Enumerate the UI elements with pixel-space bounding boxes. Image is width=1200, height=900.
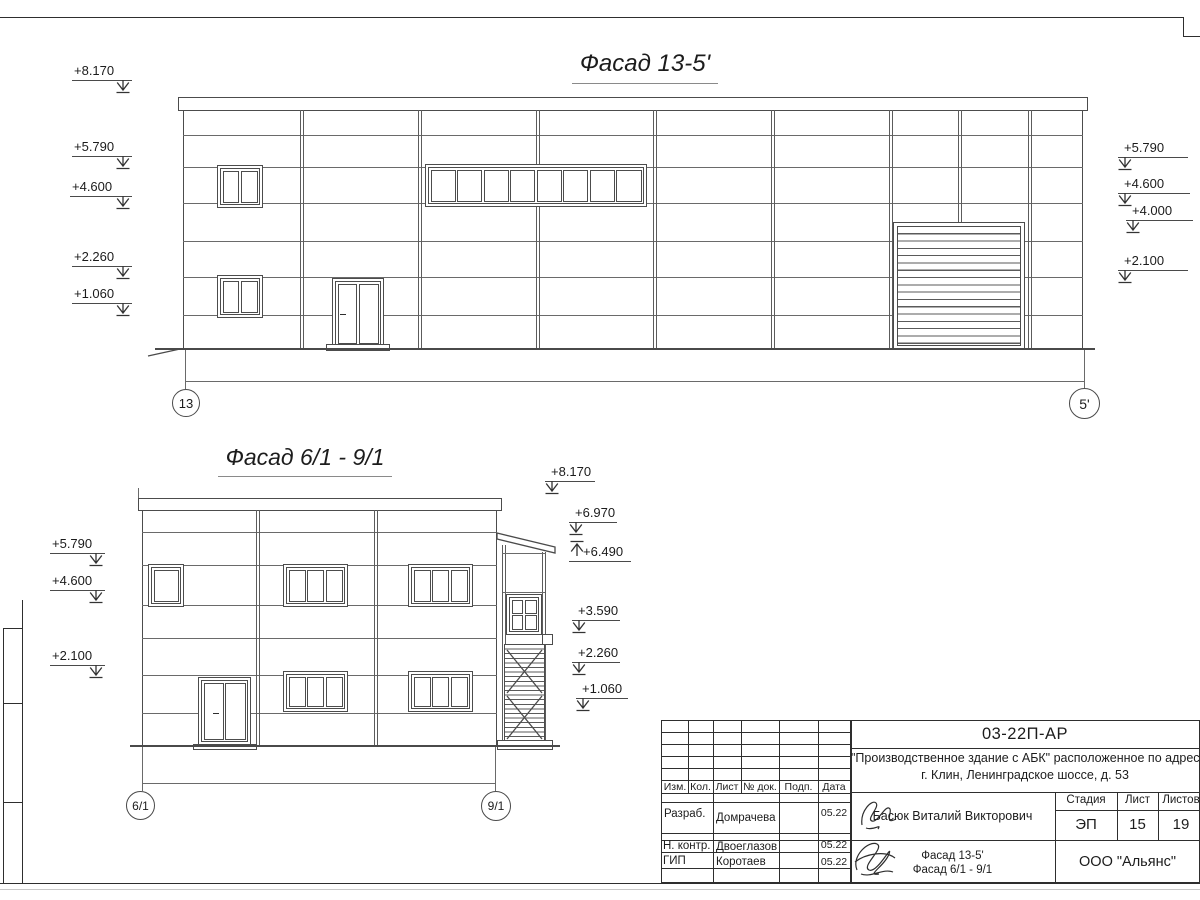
sheets-label: Листов <box>1158 794 1200 806</box>
window <box>217 275 263 318</box>
window <box>408 671 473 712</box>
door-handle <box>213 713 219 714</box>
stage-label: Стадия <box>1055 794 1117 806</box>
col-header: № док. <box>741 781 779 793</box>
elevation-mark: +4.600 <box>50 573 105 591</box>
sheet-label: Лист <box>1117 794 1158 806</box>
mullion <box>418 110 422 348</box>
document-number: 03-22П-АР <box>850 721 1200 747</box>
facade2-title: Фасад 6/1 - 9/1 <box>185 444 425 477</box>
tb-line <box>661 793 850 794</box>
project-line1: "Производственное здание с АБК" располож… <box>851 751 1199 765</box>
mullion <box>374 510 378 745</box>
mullion <box>1028 110 1032 348</box>
frame-line <box>0 883 1200 884</box>
tb-line <box>661 802 850 803</box>
role-name: Двоеглазов <box>716 841 777 853</box>
ground-line <box>155 348 1095 350</box>
joint-line <box>183 135 1083 136</box>
drawing-title-line2: Фасад 6/1 - 9/1 <box>913 864 992 876</box>
elevation-mark: +8.170 <box>545 464 595 482</box>
elevation-mark: +3.590 <box>572 603 620 621</box>
axis-bubble: 13 <box>172 389 200 417</box>
role-date: 05.22 <box>818 807 850 819</box>
role-date: 05.22 <box>818 839 850 851</box>
role-name: Коротаев <box>716 856 766 868</box>
joint-line <box>142 713 497 714</box>
elevation-mark: +5.790 <box>72 139 132 157</box>
stair-window <box>506 594 542 635</box>
tb-line <box>661 744 850 745</box>
tb-line <box>1055 810 1200 811</box>
window <box>408 564 473 607</box>
elevation-mark: +5.790 <box>50 536 105 554</box>
mullion <box>958 110 962 222</box>
drawing-title: Фасад 13-5' Фасад 6/1 - 9/1 <box>852 843 1053 882</box>
elevation-mark: +5.790 <box>1118 140 1188 158</box>
sectional-gate <box>893 222 1025 350</box>
axis-bubble: 5' <box>1069 388 1100 419</box>
window <box>283 671 348 712</box>
dim-line <box>185 381 1084 382</box>
door-handle <box>340 314 346 315</box>
mullion <box>653 110 657 348</box>
elevation-mark: +2.260 <box>572 645 620 663</box>
elevation-mark: +6.970 <box>569 505 617 523</box>
dim-line <box>142 783 495 784</box>
elevation-mark: +4.600 <box>1118 176 1190 194</box>
axis-bubble: 9/1 <box>481 791 511 821</box>
entrance-door <box>198 677 251 745</box>
extension-line <box>495 747 496 791</box>
role-label: ГИП <box>663 855 686 867</box>
joint-line <box>142 532 497 533</box>
ground-slope-tick <box>146 344 182 358</box>
tb-line <box>850 840 1200 841</box>
window <box>217 165 263 208</box>
sheet-edge-line <box>0 889 1200 890</box>
window <box>148 564 184 607</box>
tb-line <box>661 833 850 834</box>
elevation-mark: +2.260 <box>72 249 132 267</box>
tb-line <box>661 868 850 869</box>
drawing-title-line1: Фасад 13-5' <box>921 850 983 862</box>
sheet-value: 15 <box>1117 816 1158 833</box>
col-header: Дата <box>818 781 850 793</box>
company-name: ООО "Альянс" <box>1055 842 1200 881</box>
mullion <box>536 110 540 348</box>
stair-beam <box>502 553 546 554</box>
elevation-mark: +4.600 <box>70 179 132 197</box>
elevation-mark: +6.490 <box>569 544 631 562</box>
project-line2: г. Клин, Ленинградское шоссе, д. 53 <box>851 768 1199 782</box>
window <box>283 564 348 607</box>
joint-line <box>142 638 497 639</box>
extension-line <box>1084 350 1085 388</box>
extension-line <box>142 747 143 791</box>
elevation-mark: +4.000 <box>1126 203 1193 221</box>
tb-line <box>850 748 1200 749</box>
parapet-cap <box>178 97 1088 111</box>
role-date: 05.22 <box>818 856 850 868</box>
role-label: Разраб. <box>664 808 705 820</box>
frame-line <box>1183 36 1200 37</box>
elevation-mark: +2.100 <box>50 648 105 666</box>
col-header: Кол. <box>688 781 713 793</box>
frame-line <box>3 628 4 883</box>
drawing-sheet: Фасад 13-5' 13 5' <box>0 0 1200 900</box>
elevation-mark: +1.060 <box>576 681 628 699</box>
col-header: Изм. <box>662 781 688 793</box>
extension-line <box>185 350 186 389</box>
project-name: "Производственное здание с АБК" располож… <box>851 751 1199 791</box>
col-header: Лист <box>713 781 741 793</box>
frame-line <box>1183 17 1184 36</box>
tb-line <box>850 792 1200 793</box>
tb-line <box>661 768 850 769</box>
role-label: Н. контр. <box>663 840 710 852</box>
mullion <box>300 110 304 348</box>
stair-cross-brace <box>504 644 545 741</box>
mullion <box>256 510 260 745</box>
elevation-mark: +8.170 <box>72 63 132 81</box>
stage-value: ЭП <box>1055 816 1117 833</box>
role-name: Домрачева <box>716 812 776 824</box>
author-name: Басюк Виталий Викторович <box>852 794 1053 838</box>
elevation-mark: +2.100 <box>1118 253 1188 271</box>
axis-bubble: 6/1 <box>126 791 155 820</box>
ribbon-window <box>425 164 647 207</box>
stair-rail <box>503 592 545 593</box>
frame-line <box>0 17 1183 18</box>
facade1-title: Фасад 13-5' <box>530 50 760 84</box>
frame-line <box>3 802 22 803</box>
frame-line <box>3 703 22 704</box>
elevation-mark: +1.060 <box>72 286 132 304</box>
sheets-value: 19 <box>1158 816 1200 833</box>
frame-line <box>3 628 22 629</box>
col-header: Подп. <box>779 781 818 793</box>
frame-line <box>22 600 23 883</box>
mullion <box>771 110 775 348</box>
tb-line <box>661 756 850 757</box>
tb-line <box>661 732 850 733</box>
